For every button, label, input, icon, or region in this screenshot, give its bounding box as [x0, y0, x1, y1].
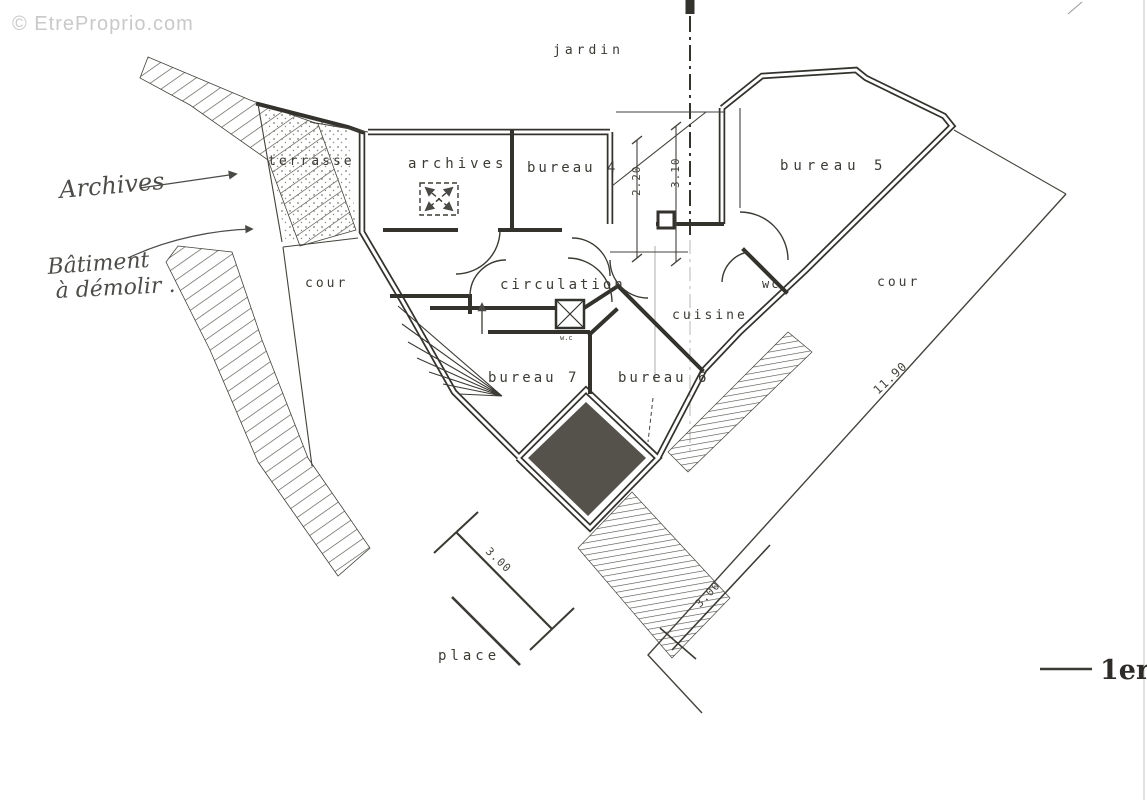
scanned-floor-plan-page: 1er © EtreProprio.com jardin terrasse ar…: [0, 0, 1147, 800]
room-label-archives: archives: [408, 156, 507, 172]
sheet-label: 1er: [1100, 655, 1147, 686]
dimension-label-3-00-left: 3.00: [483, 545, 514, 576]
room-label-wc: wc: [762, 277, 780, 291]
entry-column-base: [658, 212, 674, 228]
room-label-place: place: [438, 648, 500, 664]
hatched-boundary-bands: [140, 57, 812, 658]
room-label-terrasse: terrasse: [268, 154, 355, 169]
watermark: © EtreProprio.com: [12, 13, 194, 35]
room-label-wc-small: w.c: [560, 334, 573, 342]
outer-walls: [362, 70, 952, 528]
scan-mark-top-right: [1068, 2, 1082, 14]
room-label-bureau6: bureau 6: [618, 370, 709, 386]
room-label-circulation: circulation: [500, 277, 626, 293]
door-arc-archives: [456, 230, 500, 274]
room-label-bureau7: bureau 7: [488, 370, 579, 386]
archives-hatch-symbol: [420, 183, 458, 215]
shaft-box: [556, 300, 584, 328]
room-label-cuisine: cuisine: [672, 308, 748, 323]
site-boundary-line: [648, 194, 1066, 713]
extension-lines: [258, 104, 1066, 466]
door-arc-wc: [722, 252, 748, 282]
handwritten-archives-note: Archives: [56, 167, 166, 204]
dimension-bottom-left: [434, 512, 574, 665]
room-label-cour-left: cour: [305, 276, 348, 291]
room-label-bureau5: bureau 5: [780, 158, 887, 174]
dimension-label-11-90: 11.90: [870, 359, 910, 397]
door-arc-circulation-left: [572, 238, 610, 276]
room-label-jardin: jardin: [553, 43, 624, 58]
hatch-band-left: [166, 246, 370, 576]
dimension-label-3-10: 3.10: [669, 158, 682, 189]
room-label-bureau4: bureau 4: [527, 160, 618, 176]
handwritten-demolir-line2: à démolir .: [55, 273, 176, 304]
floor-plan-canvas: 1er © EtreProprio.com jardin terrasse ar…: [0, 0, 1147, 800]
room-label-cour-right: cour: [877, 275, 920, 290]
dimension-label-2-20: 2.20: [630, 166, 643, 197]
dashed-construction-line: [648, 398, 653, 442]
